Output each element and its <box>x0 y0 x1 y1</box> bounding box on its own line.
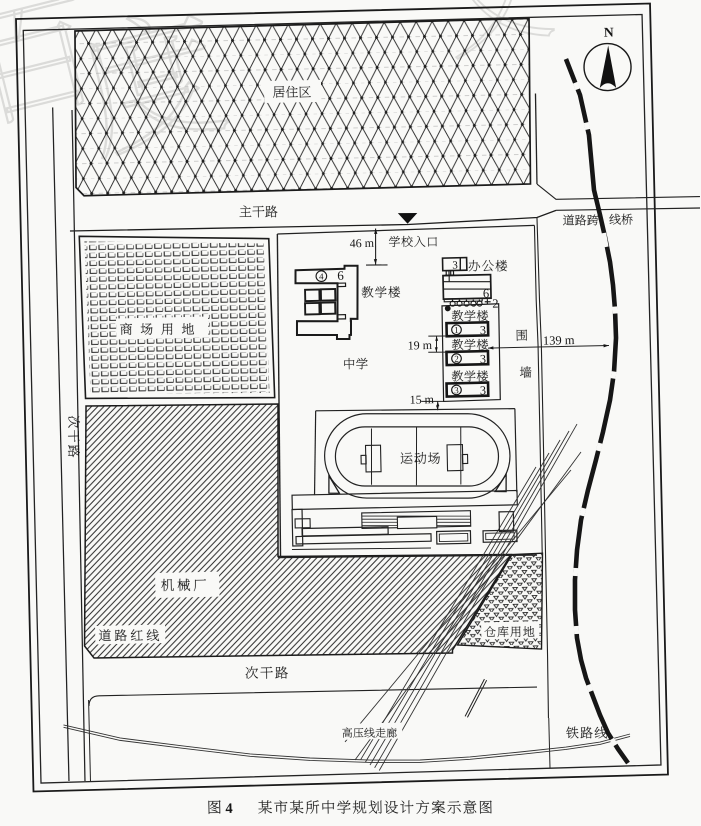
svg-text:N: N <box>604 24 614 39</box>
svg-text:19 m: 19 m <box>408 338 433 353</box>
svg-text:15 m: 15 m <box>409 392 434 407</box>
svg-text:139 m: 139 m <box>543 333 575 348</box>
svg-text:46 m: 46 m <box>349 236 374 251</box>
svg-text:1: 1 <box>454 325 459 335</box>
svg-text:4: 4 <box>225 801 233 817</box>
svg-text:6: 6 <box>483 286 490 300</box>
svg-text:3: 3 <box>480 383 486 397</box>
svg-text:2: 2 <box>454 354 459 364</box>
svg-text:3: 3 <box>454 385 459 395</box>
svg-text:6: 6 <box>337 268 344 283</box>
svg-text:3: 3 <box>480 352 486 366</box>
svg-text:3: 3 <box>480 323 486 337</box>
svg-text:4: 4 <box>319 271 324 281</box>
svg-text:3: 3 <box>452 259 458 271</box>
